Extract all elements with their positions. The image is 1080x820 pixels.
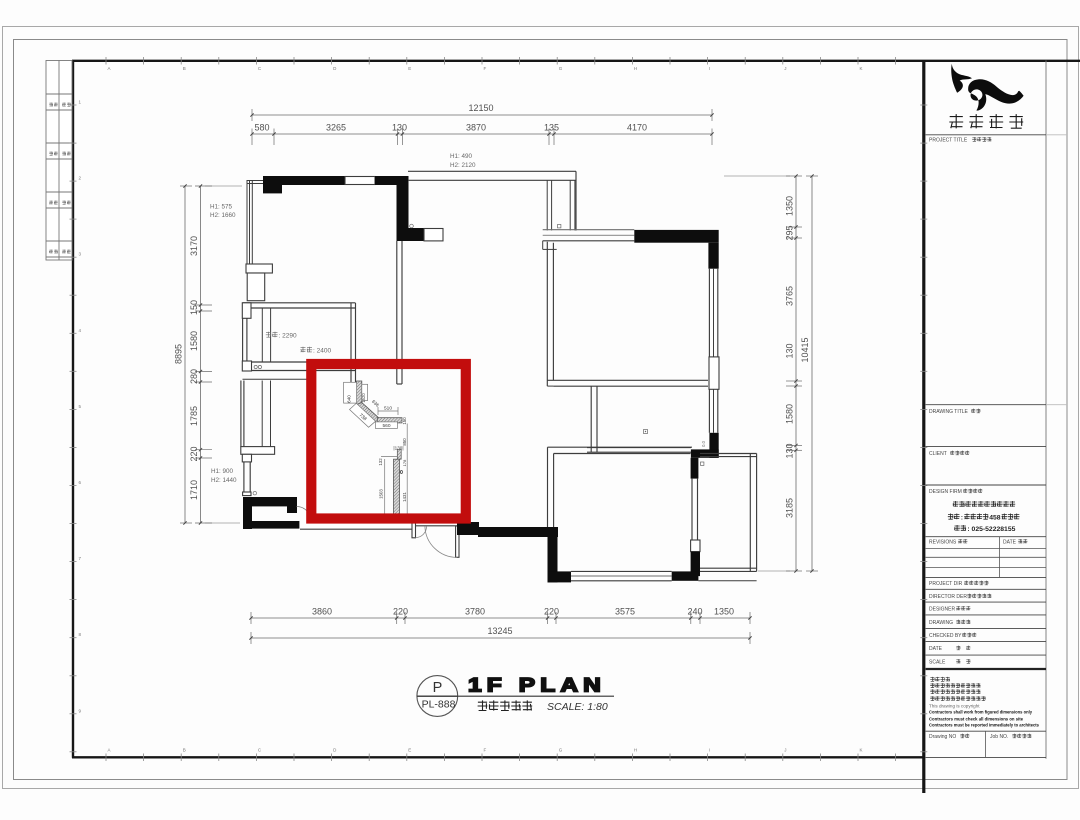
svg-text:1785: 1785 xyxy=(189,406,199,426)
svg-text:H1: 490: H1: 490 xyxy=(450,153,473,160)
svg-text:1580: 1580 xyxy=(785,404,795,424)
svg-text:150: 150 xyxy=(189,300,199,315)
svg-text:: 025-52228155: : 025-52228155 xyxy=(967,526,1015,533)
svg-text:3860: 3860 xyxy=(312,607,332,617)
svg-text:This drawing is copyright: This drawing is copyright xyxy=(929,703,980,708)
svg-text:12150: 12150 xyxy=(468,103,493,113)
svg-text:3780: 3780 xyxy=(465,607,485,617)
svg-text:E: E xyxy=(408,66,411,71)
svg-text::: : xyxy=(961,515,963,522)
svg-text:J: J xyxy=(784,748,786,753)
svg-text:DATE: DATE xyxy=(929,646,943,652)
svg-text:H2: 1660: H2: 1660 xyxy=(210,212,236,219)
svg-text:130: 130 xyxy=(785,443,795,458)
svg-text:220: 220 xyxy=(544,607,559,617)
svg-text:1520: 1520 xyxy=(361,393,366,403)
svg-text:A: A xyxy=(108,66,111,71)
svg-text:13245: 13245 xyxy=(487,626,512,636)
svg-text:Contractors must check all dim: Contractors must check all dimensions on… xyxy=(929,717,1023,723)
svg-text:1710: 1710 xyxy=(189,480,199,500)
svg-text:220: 220 xyxy=(393,607,408,617)
svg-text:E: E xyxy=(408,748,411,753)
svg-text:B: B xyxy=(183,748,186,753)
svg-text:K: K xyxy=(860,66,863,71)
svg-text:458: 458 xyxy=(989,515,1001,522)
svg-text:295: 295 xyxy=(785,225,795,240)
svg-text:3575: 3575 xyxy=(615,607,635,617)
svg-text:1580: 1580 xyxy=(189,331,199,351)
svg-text:135: 135 xyxy=(544,123,559,133)
svg-text:: 2290: : 2290 xyxy=(279,333,297,340)
svg-text:8895: 8895 xyxy=(174,344,184,364)
svg-text:DESIGNER: DESIGNER xyxy=(929,607,956,613)
svg-text:H2: 2120: H2: 2120 xyxy=(450,162,476,169)
svg-text:I: I xyxy=(709,66,710,71)
svg-text:CLIENT: CLIENT xyxy=(929,451,947,457)
svg-text:G: G xyxy=(559,748,563,753)
svg-text:3185: 3185 xyxy=(785,498,795,518)
svg-text:220: 220 xyxy=(189,446,199,461)
svg-text:REVISIONS: REVISIONS xyxy=(929,540,957,546)
svg-text:0.0: 0.0 xyxy=(701,440,706,446)
svg-text:A: A xyxy=(108,748,111,753)
svg-text:CHECKED BY: CHECKED BY xyxy=(929,633,962,639)
svg-text:SCALE: SCALE xyxy=(929,660,946,666)
svg-text:280: 280 xyxy=(189,369,199,384)
svg-text:Job NO.: Job NO. xyxy=(990,734,1008,740)
svg-text:J: J xyxy=(784,66,786,71)
svg-text:F: F xyxy=(484,748,487,753)
svg-text:H1: 575: H1: 575 xyxy=(210,204,233,211)
svg-text:H: H xyxy=(634,66,637,71)
svg-text:510: 510 xyxy=(384,406,392,412)
svg-text:1350: 1350 xyxy=(714,607,734,617)
svg-text:560: 560 xyxy=(382,423,390,429)
svg-text:1F PLAN: 1F PLAN xyxy=(468,676,606,697)
svg-text:4170: 4170 xyxy=(627,123,647,133)
svg-text:K: K xyxy=(860,748,863,753)
svg-text:DRAWING TITLE: DRAWING TITLE xyxy=(929,409,969,415)
svg-text:DATE: DATE xyxy=(1003,540,1017,546)
svg-text:1350: 1350 xyxy=(785,196,795,216)
svg-text:3765: 3765 xyxy=(785,286,795,306)
svg-text:H1: 900: H1: 900 xyxy=(211,468,234,475)
svg-text:130: 130 xyxy=(392,123,407,133)
svg-text:178: 178 xyxy=(402,459,407,466)
svg-text:B: B xyxy=(183,66,186,71)
svg-text:Drawing NO: Drawing NO xyxy=(929,734,956,740)
svg-text:Contractors shall work from fi: Contractors shall work from figured dime… xyxy=(929,710,1032,716)
svg-text:850: 850 xyxy=(402,438,407,446)
svg-text:PL-888: PL-888 xyxy=(422,699,456,711)
svg-text:F: F xyxy=(484,66,487,71)
svg-text:1503: 1503 xyxy=(379,489,384,499)
svg-text:I: I xyxy=(709,748,710,753)
svg-text:H: H xyxy=(634,748,637,753)
svg-text:132: 132 xyxy=(378,458,383,466)
svg-text:H2: 1440: H2: 1440 xyxy=(211,477,237,484)
svg-text:G: G xyxy=(559,66,563,71)
svg-text:P: P xyxy=(433,680,443,696)
svg-text:PROJECT DIR: PROJECT DIR xyxy=(929,581,963,587)
svg-text:3170: 3170 xyxy=(189,236,199,256)
svg-text:640: 640 xyxy=(347,395,352,403)
svg-text:SCALE: 1:80: SCALE: 1:80 xyxy=(547,701,608,713)
svg-text:10415: 10415 xyxy=(800,337,810,362)
svg-text:3870: 3870 xyxy=(466,123,486,133)
svg-text:DESIGN FIRM: DESIGN FIRM xyxy=(929,489,962,495)
svg-text:580: 580 xyxy=(254,123,269,133)
svg-text:Contractors must be reported i: Contractors must be reported immediately… xyxy=(929,722,1039,728)
svg-text:: 2400: : 2400 xyxy=(313,348,331,355)
svg-text:130: 130 xyxy=(785,343,795,358)
svg-text:3265: 3265 xyxy=(326,123,346,133)
svg-text:240: 240 xyxy=(687,607,702,617)
svg-text:DIRECTOR DER: DIRECTOR DER xyxy=(929,594,967,600)
svg-text:DRAWING: DRAWING xyxy=(929,620,953,626)
svg-text:PROJECT TITLE: PROJECT TITLE xyxy=(929,138,968,144)
svg-text:1431: 1431 xyxy=(402,492,407,502)
svg-text:150: 150 xyxy=(402,417,407,425)
